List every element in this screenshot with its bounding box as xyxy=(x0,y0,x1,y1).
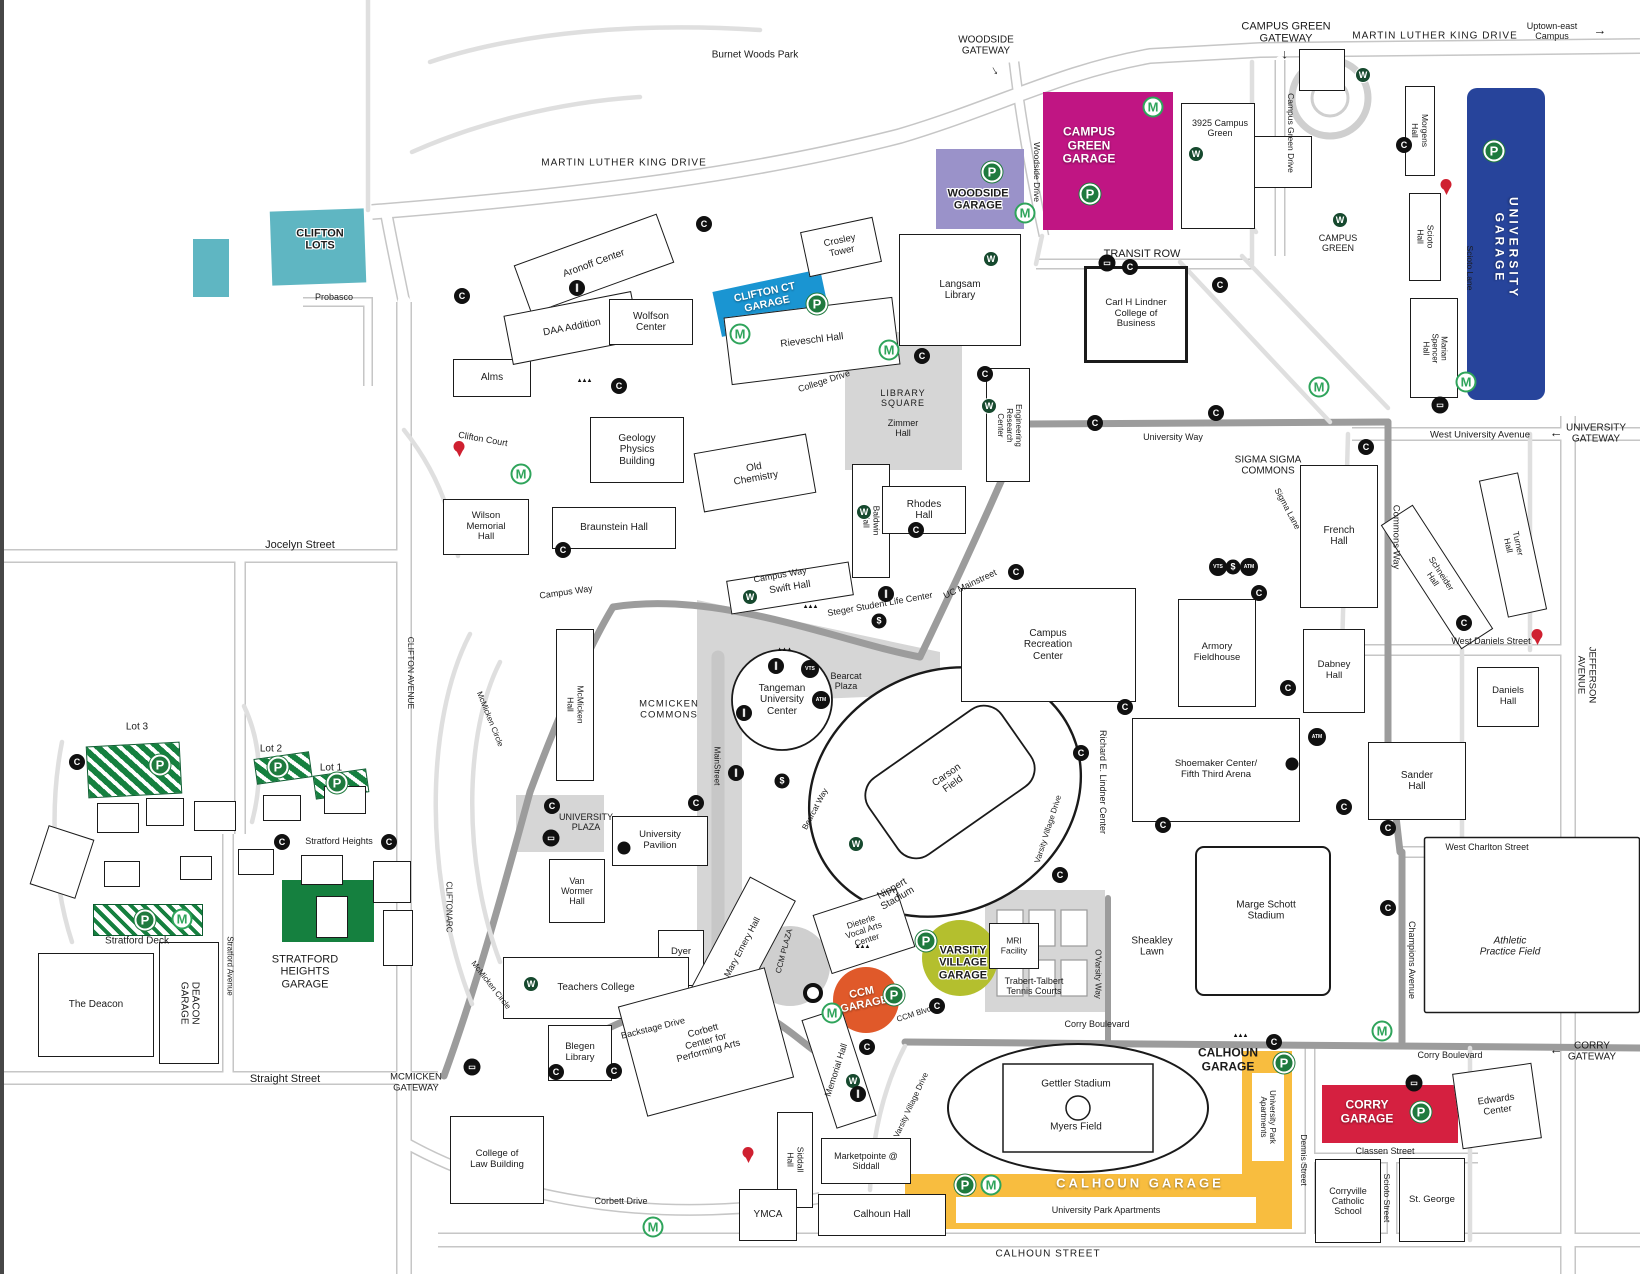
old-chemistry-label: Old Chemistry xyxy=(731,458,779,488)
van-wormer-hall: Van Wormer Hall xyxy=(549,859,605,923)
teachers-college-label: Teachers College xyxy=(557,982,634,993)
wellness-icon: W xyxy=(1355,67,1371,83)
uptown-arrow: → xyxy=(1594,24,1607,39)
dining-icon: ∥ xyxy=(569,280,585,296)
building-generic-7 xyxy=(180,856,212,880)
map-pin-icon xyxy=(1532,629,1543,640)
parking-icon: P xyxy=(955,1175,976,1196)
3925-campus-green: 3925 Campus Green xyxy=(1192,118,1248,138)
morgens-hall-label: Morgens Hall xyxy=(1410,114,1429,147)
trabert-talbert-tennis-courts: Trabert-Talbert Tennis Courts xyxy=(1005,976,1064,996)
emergency-phone-icon: C xyxy=(1155,817,1171,833)
dining-icon: ∥ xyxy=(768,658,784,674)
dining-icon: ∥ xyxy=(850,1086,866,1102)
sigma-sigma-commons: SIGMA SIGMA COMMONS xyxy=(1235,455,1302,478)
bus-stop-icon: ▭ xyxy=(464,1059,481,1076)
braunstein-hall: Braunstein Hall xyxy=(552,507,676,549)
wilson-memorial-hall-label: Wilson Memorial Hall xyxy=(466,511,505,543)
dabney-hall: Dabney Hall xyxy=(1303,629,1365,713)
emergency-phone-icon: C xyxy=(1208,405,1224,421)
calhoun-garage-band-label: CALHOUN GARAGE xyxy=(1056,1177,1224,1192)
emergency-phone-icon: C xyxy=(977,366,993,382)
deacon-garage: DEACON GARAGE xyxy=(159,942,219,1064)
armory-fieldhouse: Armory Fieldhouse xyxy=(1178,599,1256,707)
emergency-phone-icon: C xyxy=(555,542,571,558)
marian-spencer-hall: Marian Spencer Hall xyxy=(1410,298,1458,398)
emergency-phone-icon: C xyxy=(69,754,85,770)
campus-parking-map: AlmsAronoff CenterDAA AdditionWolfson Ce… xyxy=(0,0,1640,1274)
emergency-phone-icon: C xyxy=(1336,799,1352,815)
marketpointe-at-siddall: Marketpointe @ Siddall xyxy=(821,1138,911,1184)
st-george: St. George xyxy=(1399,1158,1465,1242)
aronoff-center-label: Aronoff Center xyxy=(562,248,627,281)
corryville-catholic-school-label: Corryville Catholic School xyxy=(1329,1186,1367,1216)
athletic-practice-outline xyxy=(1425,838,1640,1013)
building-generic-8 xyxy=(238,849,274,875)
college-of-law-building: College of Law Building xyxy=(450,1116,544,1204)
clifton-lots-small xyxy=(193,239,229,297)
parking-outline-icon: P xyxy=(317,903,339,925)
langsam-library: Langsam Library xyxy=(899,234,1021,346)
stratford-heights-label: Stratford Heights xyxy=(305,836,373,846)
metro-stop-icon: M xyxy=(172,909,193,930)
stratford-avenue-label: Stratford Avenue xyxy=(225,936,234,995)
parking-icon: P xyxy=(135,910,156,931)
metro-stop-icon: M xyxy=(1309,377,1330,398)
building-generic-13 xyxy=(1299,49,1345,91)
dennis-street-label: Dennis Street xyxy=(1298,1134,1308,1186)
ovarsity-way-label: O'Varsity Way xyxy=(1093,949,1102,999)
parking-icon: P xyxy=(884,985,905,1006)
deacon-garage-label: DEACON GARAGE xyxy=(178,982,200,1025)
myers-field: Myers Field xyxy=(1050,1121,1102,1132)
daniels-hall: Daniels Hall xyxy=(1477,667,1539,727)
blegen-library-label: Blegen Library xyxy=(565,1042,595,1063)
dining-icon: ∥ xyxy=(736,705,752,721)
building-generic-1 xyxy=(146,798,184,826)
calhoun-street-label: CALHOUN STREET xyxy=(995,1248,1100,1259)
engineering-research-center-label: Engineering Research Center xyxy=(995,404,1022,447)
scioto-hall-label: Scioto Hall xyxy=(1415,222,1434,252)
stairs-icon: ▲▲▲ xyxy=(577,378,592,384)
jefferson-avenue-label: JEFFERSON AVENUE xyxy=(1575,647,1596,703)
emergency-phone-icon: C xyxy=(1380,820,1396,836)
university-park-apartments-band-label: University Park Apartments xyxy=(1052,1205,1161,1215)
parking-icon: P xyxy=(1411,1102,1432,1123)
wolfson-center-label: Wolfson Center xyxy=(633,311,669,333)
marian-spencer-hall-label: Marian Spencer Hall xyxy=(1421,325,1448,371)
corryville-catholic-school: Corryville Catholic School xyxy=(1315,1159,1381,1243)
emergency-phone-icon: C xyxy=(1008,564,1024,580)
emergency-phone-icon: C xyxy=(1380,900,1396,916)
campus-green-garage-label: CAMPUS GREEN GARAGE xyxy=(1063,126,1116,167)
emergency-phone-icon: C xyxy=(1087,415,1103,431)
jocelyn-street-label: Jocelyn Street xyxy=(265,539,335,551)
athletic-practice-field: Athletic Practice Field xyxy=(1480,936,1541,959)
mlk-drive-right: MARTIN LUTHER KING DRIVE xyxy=(1352,30,1518,41)
dollar-icon: $ xyxy=(775,774,790,789)
geology-physics-building: Geology Physics Building xyxy=(590,417,684,483)
french-hall: French Hall xyxy=(1300,465,1378,608)
carl-h-lindner-college-of-business-label: Carl H Lindner College of Business xyxy=(1105,298,1166,330)
marge-schott-stadium: Marge Schott Stadium xyxy=(1236,900,1295,923)
roundabout-icon xyxy=(803,983,823,1003)
emergency-phone-icon: C xyxy=(1266,1034,1282,1050)
wolfson-center: Wolfson Center xyxy=(609,299,693,345)
sander-hall-label: Sander Hall xyxy=(1401,770,1433,792)
campus-green-gateway-arrow: → xyxy=(1279,49,1294,62)
marketpointe-at-siddall-label: Marketpointe @ Siddall xyxy=(834,1151,898,1171)
shoemaker-center: Shoemaker Center/ Fifth Third Arena xyxy=(1132,718,1300,822)
emergency-phone-icon: C xyxy=(1358,439,1374,455)
emergency-phone-icon: C xyxy=(1251,585,1267,601)
clifton-lots-label: CLIFTON LOTS xyxy=(296,228,343,253)
langsam-library-label: Langsam Library xyxy=(939,279,980,301)
minor-7 xyxy=(412,97,640,152)
stairs-icon: ▲▲▲ xyxy=(1233,1033,1248,1039)
parking-icon: P xyxy=(916,931,937,952)
rieveschl-hall-label: Rieveschl Hall xyxy=(780,332,844,351)
building-generic-10 xyxy=(373,861,411,903)
parking-icon: P xyxy=(327,773,348,794)
swift-hall-label: Swift Hall xyxy=(769,579,812,597)
building-generic-3 xyxy=(263,795,301,821)
corry-gateway-arrow: → xyxy=(1550,1046,1563,1061)
dabney-hall-label: Dabney Hall xyxy=(1318,660,1351,681)
university-way-label: University Way xyxy=(1143,432,1203,442)
stairs-icon: ▲▲▲ xyxy=(803,604,818,610)
crosley-tower-label: Crosley Tower xyxy=(823,233,859,260)
tennis-court-6 xyxy=(1061,960,1087,996)
minor-3 xyxy=(1180,262,1330,422)
minor-6 xyxy=(430,27,760,62)
alms-label: Alms xyxy=(481,372,503,383)
mcmicken-hall-label: McMicken Hall xyxy=(565,686,584,724)
campus-green: CAMPUS GREEN xyxy=(1319,233,1358,253)
probasco-label: Probasco xyxy=(315,292,353,302)
metro-stop-icon: M xyxy=(643,1217,664,1238)
emergency-phone-icon: C xyxy=(696,216,712,232)
emergency-phone-icon: C xyxy=(544,798,560,814)
wellness-icon: W xyxy=(523,976,539,992)
commons-way-label: Commons Way xyxy=(1390,505,1401,570)
wilson-memorial-hall: Wilson Memorial Hall xyxy=(443,499,529,555)
marker-dot-icon xyxy=(1286,758,1299,771)
metro-stop-icon: M xyxy=(1372,1021,1393,1042)
university-garage-label: UNIVERSITY GARAGE xyxy=(1492,181,1519,315)
corry-gateway: CORRY GATEWAY xyxy=(1568,1041,1616,1064)
building-generic-12 xyxy=(1252,136,1312,188)
bearcat-plaza: Bearcat Plaza xyxy=(830,671,861,691)
scioto-lane: Scioto Lane xyxy=(1464,246,1474,291)
metro-stop-icon: M xyxy=(981,1175,1002,1196)
vts-icon: VTS xyxy=(1209,558,1227,576)
ymca: YMCA xyxy=(739,1189,797,1241)
french-hall-label: French Hall xyxy=(1323,525,1354,547)
wellness-icon: W xyxy=(981,398,997,414)
varsity-village-garage-label: VARSITY VILLAGE GARAGE xyxy=(939,944,987,981)
wellness-icon: W xyxy=(1332,212,1348,228)
mcmicken-hall: McMicken Hall xyxy=(556,629,594,781)
mcmicken-circle-road xyxy=(436,634,472,1004)
mcmicken-gateway: MCMICKEN GATEWAY xyxy=(390,1072,442,1093)
emergency-phone-icon: C xyxy=(929,998,945,1014)
edwards-center-label: Edwards Center xyxy=(1477,1093,1517,1119)
corbett-drive-label: Corbett Drive xyxy=(594,1196,647,1206)
west-charlton-street-label: West Charlton Street xyxy=(1445,842,1528,852)
woodside-garage-label: WOODSIDE GARAGE xyxy=(947,188,1008,213)
emergency-phone-icon: C xyxy=(1456,615,1472,631)
college-of-law-building-label: College of Law Building xyxy=(470,1149,524,1170)
sheakley-lawn: Sheakley Lawn xyxy=(1131,936,1172,959)
carl-h-lindner-college-of-business: Carl H Lindner College of Business xyxy=(1084,266,1188,363)
gettler-stadium: Gettler Stadium xyxy=(1041,1078,1110,1089)
morgens-hall: Morgens Hall xyxy=(1405,86,1435,176)
west-daniels-street-label: West Daniels Street xyxy=(1451,636,1530,646)
metro-stop-icon: M xyxy=(1456,372,1477,393)
metro-stop-icon: M xyxy=(1015,203,1036,224)
road-network xyxy=(0,0,1640,1274)
university-gateway: UNIVERSITY GATEWAY xyxy=(1566,423,1626,446)
woodside-drive-label: Woodside Drive xyxy=(1031,142,1041,202)
atm-icon: ATM xyxy=(1240,558,1258,576)
scioto-hall: Scioto Hall xyxy=(1409,193,1441,281)
building-generic-2 xyxy=(194,801,236,831)
dollar-icon: $ xyxy=(872,614,887,629)
parking-icon: P xyxy=(807,294,828,315)
braunstein-hall-label: Braunstein Hall xyxy=(580,522,648,533)
campus-recreation-center-label: Campus Recreation Center xyxy=(1024,628,1072,662)
dining-icon: ∥ xyxy=(728,765,744,781)
emergency-phone-icon: C xyxy=(1212,277,1228,293)
richard-e-lindner-center: Richard E. Lindner Center xyxy=(1098,730,1108,834)
vts-icon: VTS xyxy=(801,660,819,678)
building-generic-6 xyxy=(104,861,140,887)
corry-boulevard-right: Corry Boulevard xyxy=(1417,1050,1482,1060)
emergency-phone-icon: C xyxy=(859,1039,875,1055)
calhoun-hall-label: Calhoun Hall xyxy=(853,1209,910,1220)
stratford-deck-label: Stratford Deck xyxy=(105,935,169,946)
emergency-phone-icon: C xyxy=(1122,259,1138,275)
wellness-icon: W xyxy=(1188,146,1204,162)
metro-stop-icon: M xyxy=(511,464,532,485)
bus-stop-icon: ▭ xyxy=(1099,255,1116,272)
bus-stop-icon: ▭ xyxy=(1432,397,1449,414)
geology-physics-building-label: Geology Physics Building xyxy=(618,433,655,467)
emergency-phone-icon: C xyxy=(454,288,470,304)
lot-2-label: Lot 2 xyxy=(260,743,282,754)
parking-icon: P xyxy=(1274,1053,1295,1074)
university-pavilion-label: University Pavilion xyxy=(639,830,681,851)
map-pin-icon xyxy=(454,441,465,452)
university-park-apartments-strip-label: University Park Apartments xyxy=(1259,1090,1277,1144)
campus-green-drive-label: Campus Green Drive xyxy=(1285,93,1295,173)
calhoun-garage-label: CALHOUN GARAGE xyxy=(1198,1046,1258,1073)
corry-garage-label: CORRY GARAGE xyxy=(1341,1098,1394,1125)
engineering-research-center: Engineering Research Center xyxy=(986,368,1030,482)
wellness-icon: W xyxy=(848,836,864,852)
alms: Alms xyxy=(453,359,531,397)
van-wormer-hall-label: Van Wormer Hall xyxy=(561,876,593,906)
parking-icon: P xyxy=(268,757,289,778)
stairs-icon: ▲▲▲ xyxy=(777,647,792,653)
probasco-road-casing xyxy=(303,302,368,386)
window-left-edge xyxy=(0,0,4,1274)
emergency-phone-icon: C xyxy=(1396,137,1412,153)
emergency-phone-icon: C xyxy=(1280,680,1296,696)
gettler-track xyxy=(948,1044,1208,1172)
stairs-icon: ▲▲▲ xyxy=(855,944,870,950)
university-plaza: UNIVERSITY PLAZA xyxy=(559,812,613,832)
dining-icon: ∥ xyxy=(878,586,894,602)
wellness-icon: W xyxy=(856,504,872,520)
the-deacon-label: The Deacon xyxy=(69,999,123,1010)
classen-street-label: Classen Street xyxy=(1355,1146,1414,1156)
emergency-phone-icon: C xyxy=(381,834,397,850)
daniels-hall-label: Daniels Hall xyxy=(1492,686,1524,707)
st-george-label: St. George xyxy=(1409,1195,1455,1206)
corry-boulevard-left: Corry Boulevard xyxy=(1064,1019,1129,1029)
building-generic-14 xyxy=(383,910,413,966)
campus-recreation-center: Campus Recreation Center xyxy=(961,588,1136,702)
mri-facility: MRI Facility xyxy=(1001,936,1027,955)
left-boundary xyxy=(444,792,530,1076)
parking-icon: P xyxy=(1080,184,1101,205)
emergency-phone-icon: C xyxy=(611,378,627,394)
parking-icon: P xyxy=(1484,141,1505,162)
parking-icon: P xyxy=(982,162,1003,183)
emergency-phone-icon: C xyxy=(548,1064,564,1080)
emergency-phone-icon: C xyxy=(606,1063,622,1079)
marker-dot-icon xyxy=(618,842,631,855)
daa-addition-label: DAA Addition xyxy=(542,317,601,339)
atm-icon: ATM xyxy=(812,691,830,709)
turner-hall-label: Turner Hall xyxy=(1500,524,1527,565)
emergency-phone-icon: C xyxy=(908,522,924,538)
ymca-label: YMCA xyxy=(754,1209,783,1220)
atm-icon: ATM xyxy=(1308,728,1326,746)
straight-street-label: Straight Street xyxy=(250,1073,320,1085)
building-generic-0 xyxy=(97,803,139,833)
bus-stop-icon: ▭ xyxy=(543,830,560,847)
siddall-hall-label: Siddall Hall xyxy=(785,1143,804,1177)
university-way-drive xyxy=(1026,422,1388,424)
zimmer-hall: Zimmer Hall xyxy=(888,418,919,438)
metro-stop-icon: M xyxy=(730,324,751,345)
metro-stop-icon: M xyxy=(822,1003,843,1024)
champions-avenue-label: Champions Avenue xyxy=(1407,921,1417,999)
building-generic-9 xyxy=(301,855,343,885)
metro-stop-icon: M xyxy=(1143,97,1164,118)
armory-fieldhouse-label: Armory Fieldhouse xyxy=(1194,642,1240,663)
wellness-icon: W xyxy=(983,251,999,267)
the-deacon: The Deacon xyxy=(38,953,154,1057)
transit-row: TRANSIT ROW xyxy=(1104,248,1181,260)
emergency-phone-icon: C xyxy=(914,348,930,364)
metro-stop-icon: M xyxy=(879,340,900,361)
schneider-hall-label: Schneider Hall xyxy=(1419,556,1456,598)
map-pin-icon xyxy=(743,1147,754,1158)
mainstreet-label: MainStreet xyxy=(712,747,721,786)
rhodes-hall-label: Rhodes Hall xyxy=(907,499,941,521)
tangeman-university-center: Tangeman University Center xyxy=(759,683,806,717)
uptown-east-campus: Uptown-east Campus xyxy=(1527,21,1578,41)
emergency-phone-icon: C xyxy=(1073,745,1089,761)
rhodes-hall: Rhodes Hall xyxy=(882,486,966,534)
lot-3-label: Lot 3 xyxy=(126,721,148,732)
bus-stop-icon: ▭ xyxy=(1406,1075,1423,1092)
wellness-icon: W xyxy=(742,589,758,605)
stratford-heights-garage-label: STRATFORD HEIGHTS GARAGE xyxy=(272,953,338,990)
mcmicken-commons: MCMICKEN COMMONS xyxy=(639,699,699,720)
emergency-phone-icon: C xyxy=(688,795,704,811)
university-gateway-arrow: → xyxy=(1550,429,1563,444)
clifton-arc-label: CLIFTONARC xyxy=(444,882,453,933)
burnet-woods-park: Burnet Woods Park xyxy=(712,49,799,60)
emergency-phone-icon: C xyxy=(1117,699,1133,715)
probasco-road xyxy=(303,302,368,386)
emergency-phone-icon: C xyxy=(274,834,290,850)
library-square: LIBRARY SQUARE xyxy=(880,388,925,408)
calhoun-hall: Calhoun Hall xyxy=(818,1194,946,1236)
parking-icon: P xyxy=(150,755,171,776)
west-university-avenue-label: West University Avenue xyxy=(1430,431,1530,442)
woodside-gateway: WOODSIDE GATEWAY xyxy=(958,35,1014,58)
emergency-phone-icon: C xyxy=(1052,867,1068,883)
scioto-street-label: Scioto Street xyxy=(1381,1174,1391,1223)
tennis-court-3 xyxy=(1061,910,1087,946)
campus-green-gateway: CAMPUS GREEN GATEWAY xyxy=(1241,21,1330,46)
edwards-center: Edwards Center xyxy=(1452,1063,1542,1149)
map-pin-icon xyxy=(1441,179,1452,190)
dollar-icon: $ xyxy=(1226,560,1241,575)
clifton-avenue-label: CLIFTON AVENUE xyxy=(405,637,415,709)
sander-hall: Sander Hall xyxy=(1368,742,1466,820)
shoemaker-center-label: Shoemaker Center/ Fifth Third Arena xyxy=(1175,759,1257,780)
mlk-drive-left: MARTIN LUTHER KING DRIVE xyxy=(541,157,707,168)
